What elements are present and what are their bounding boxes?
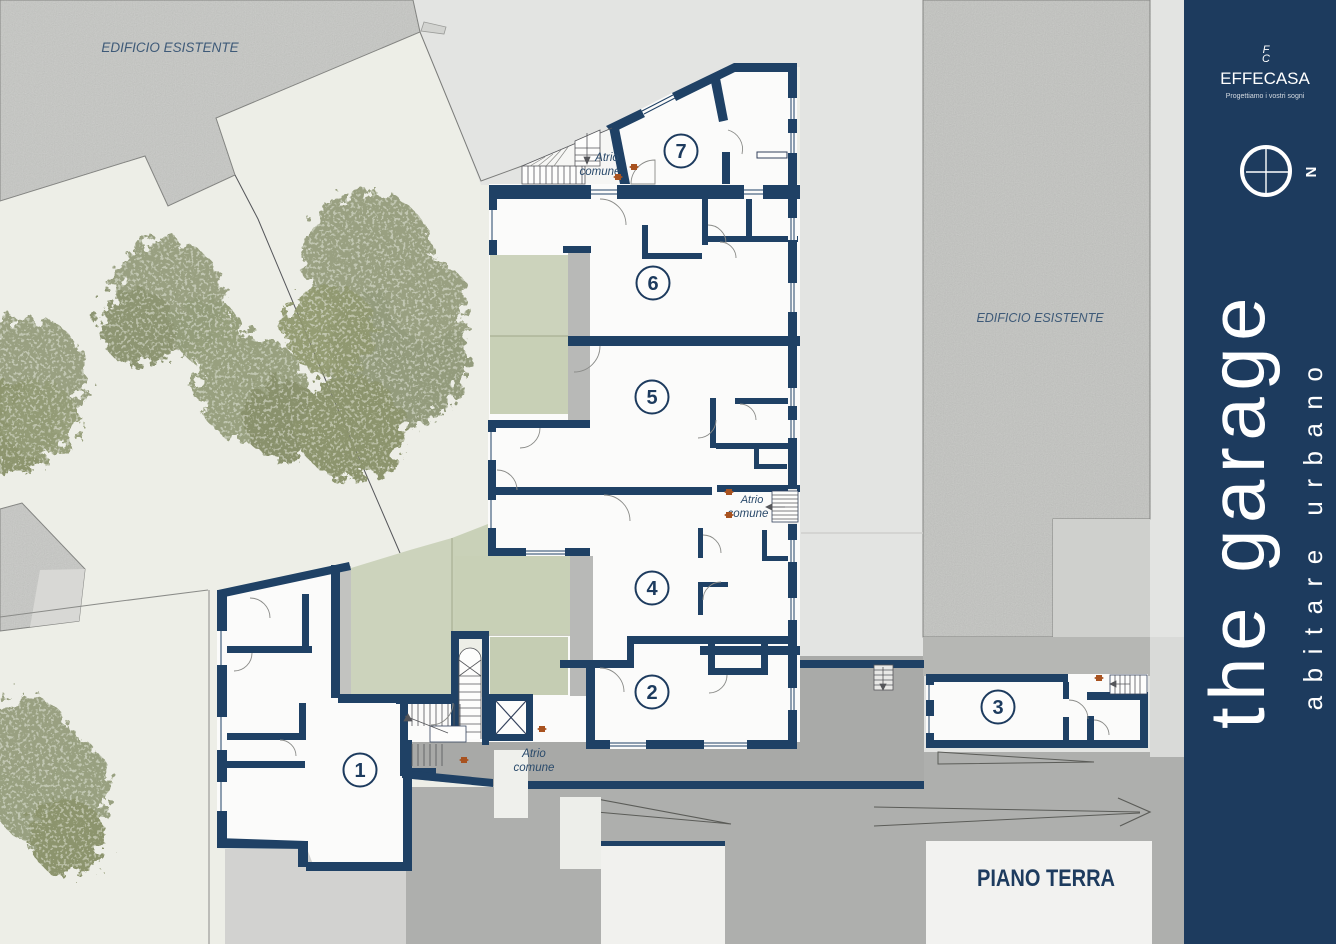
svg-text:EDIFICIO ESISTENTE: EDIFICIO ESISTENTE xyxy=(976,311,1104,325)
svg-text:Atrio: Atrio xyxy=(521,748,546,760)
svg-text:the garage: the garage xyxy=(1193,291,1281,729)
svg-text:C: C xyxy=(1262,53,1270,65)
svg-text:abitare urbano: abitare urbano xyxy=(1298,354,1328,711)
svg-text:comune: comune xyxy=(728,508,769,520)
svg-text:Atrio: Atrio xyxy=(594,152,619,164)
svg-text:EDIFICIO ESISTENTE: EDIFICIO ESISTENTE xyxy=(101,40,239,55)
svg-text:EFFECASA: EFFECASA xyxy=(1220,69,1310,88)
svg-text:comune: comune xyxy=(580,166,621,178)
svg-text:comune: comune xyxy=(514,762,555,774)
svg-text:Atrio: Atrio xyxy=(740,494,764,506)
svg-text:5: 5 xyxy=(646,387,657,409)
svg-text:7: 7 xyxy=(675,141,686,163)
svg-text:PIANO TERRA: PIANO TERRA xyxy=(977,865,1115,892)
svg-text:1: 1 xyxy=(354,760,365,782)
svg-text:6: 6 xyxy=(647,273,658,295)
svg-text:4: 4 xyxy=(646,578,658,600)
svg-text:2: 2 xyxy=(646,682,657,704)
svg-text:N: N xyxy=(1302,167,1319,178)
svg-text:3: 3 xyxy=(992,697,1003,719)
svg-text:Progettiamo i vostri sogni: Progettiamo i vostri sogni xyxy=(1226,93,1305,100)
